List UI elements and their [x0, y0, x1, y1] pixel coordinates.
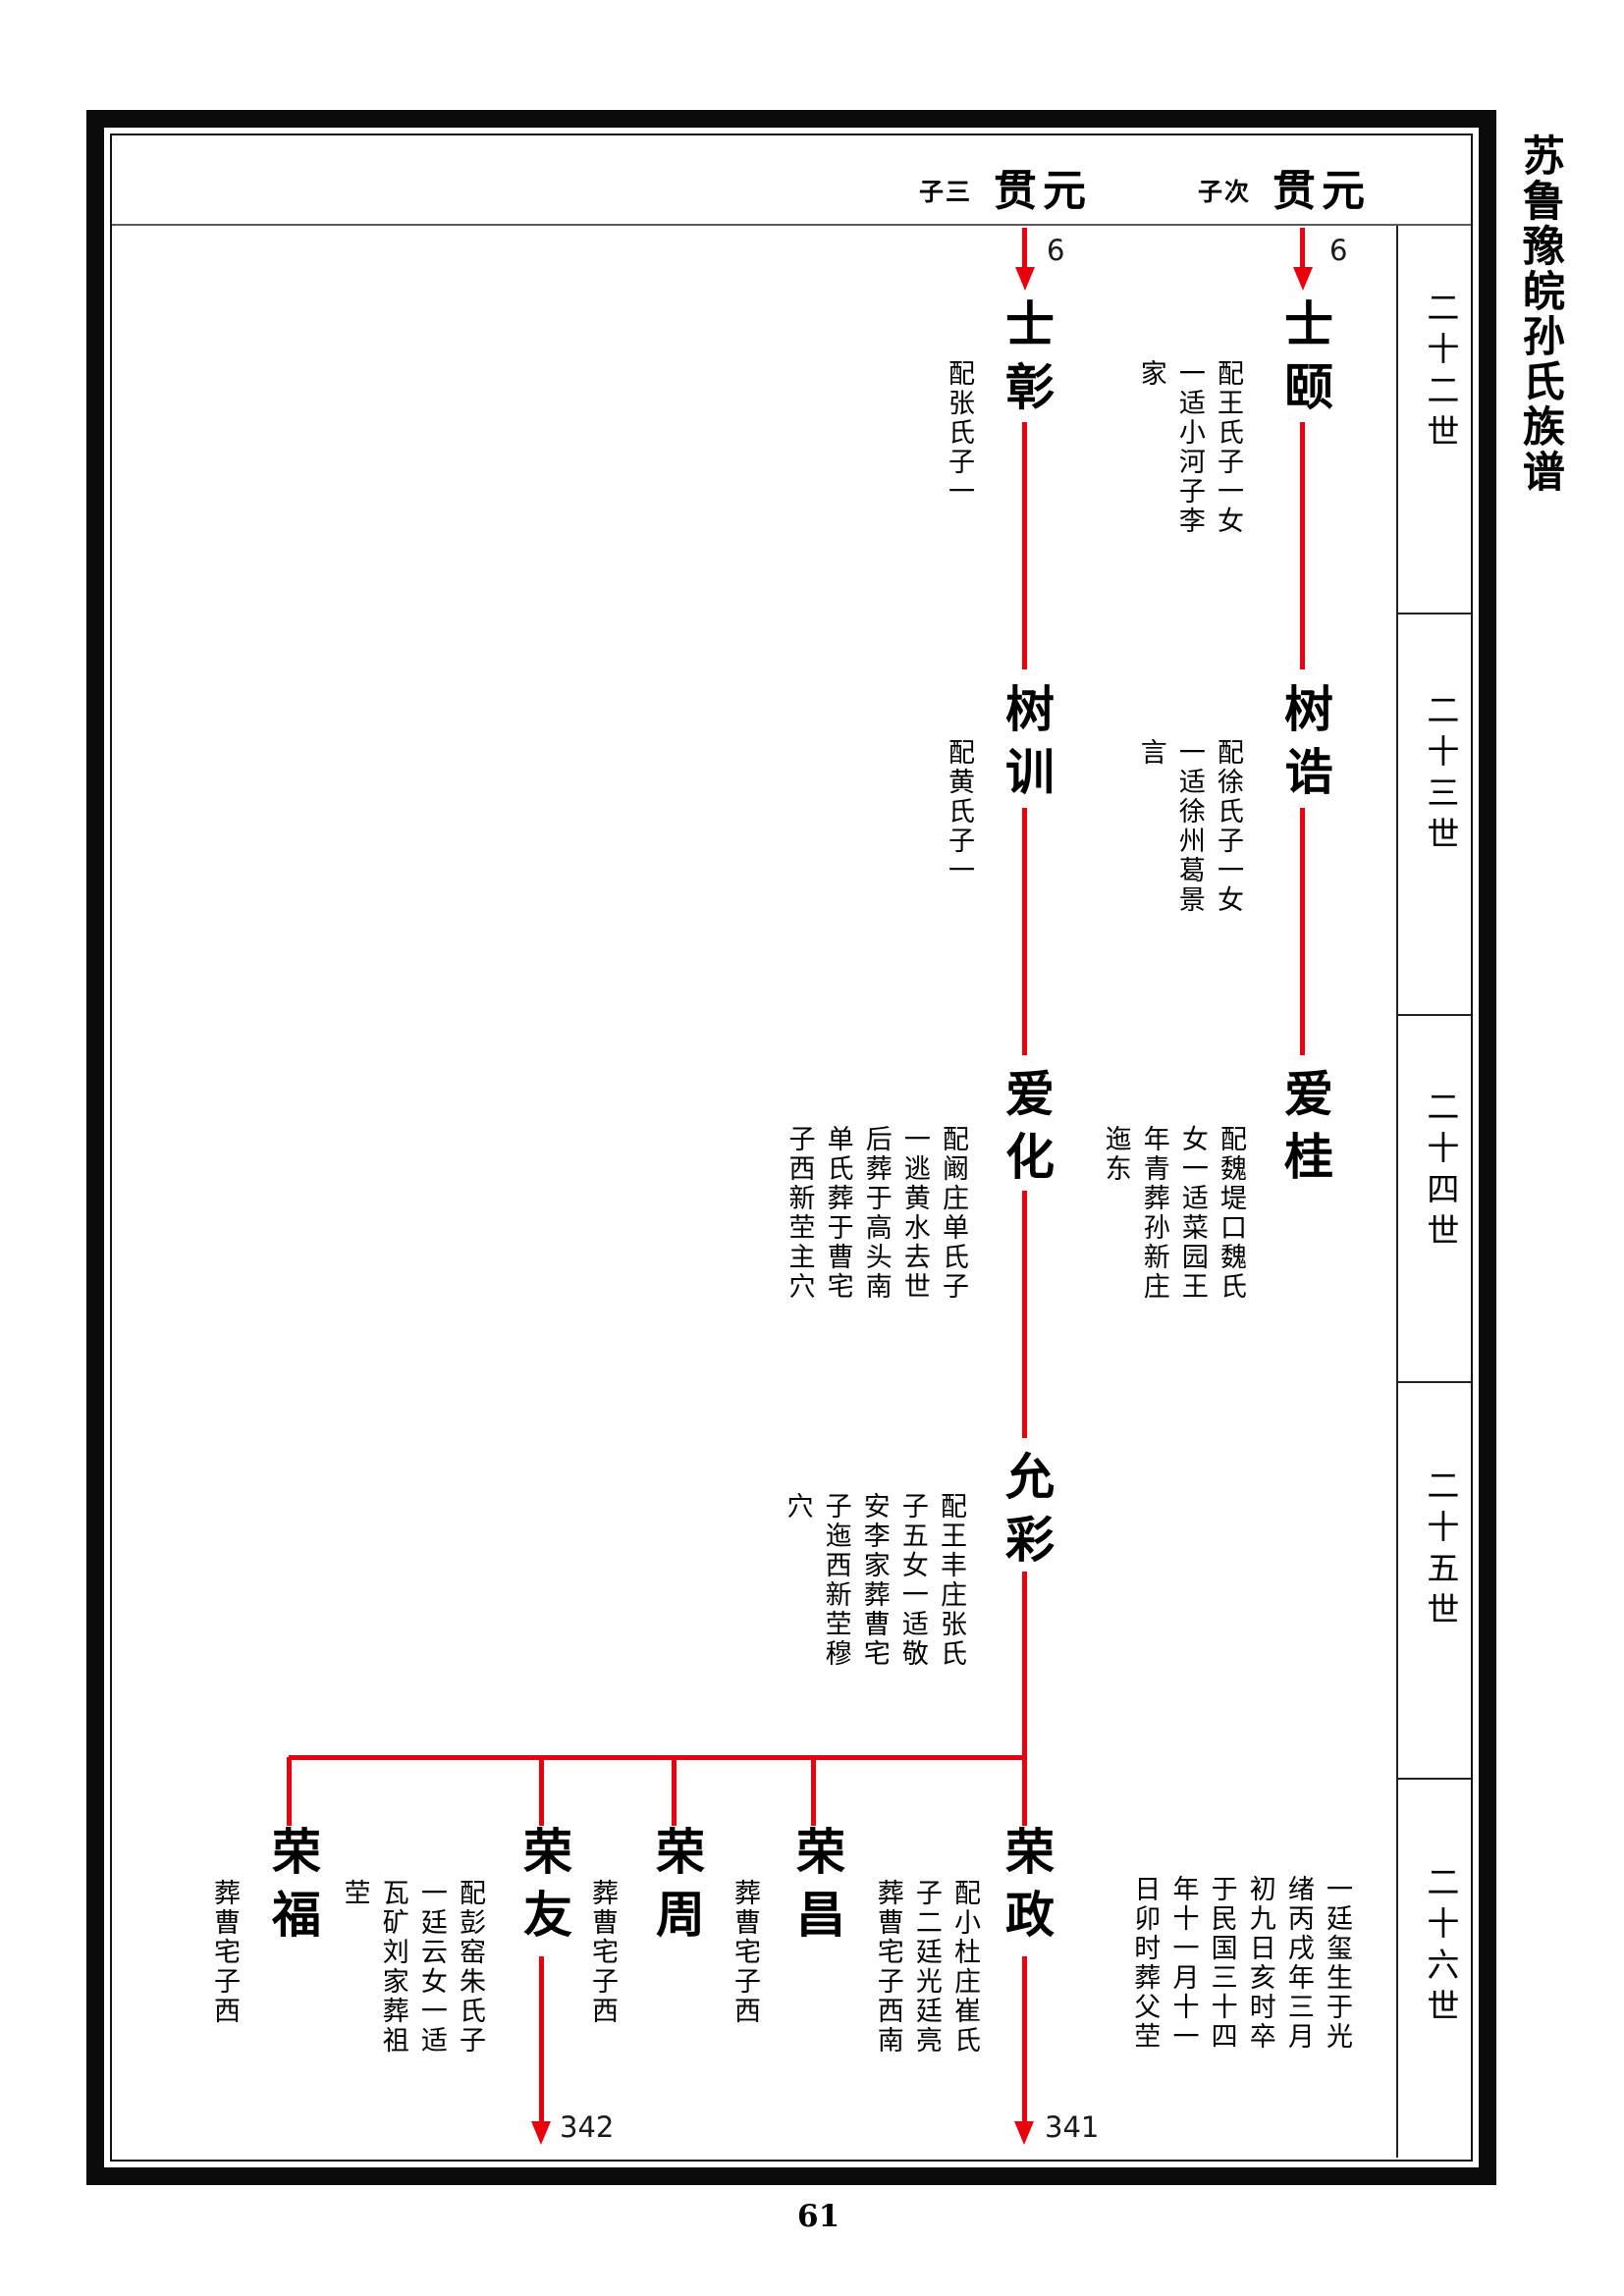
descendant-note: 一廷玺生于光绪丙戌年三月初九日亥时卒于民国三十四年十一月十一日卯时葬父茔 [1125, 1875, 1356, 2061]
person-name: 树诰 [1276, 683, 1329, 809]
book-title: 苏鲁豫皖孙氏族谱 [1508, 133, 1569, 526]
cross-ref-number: 342 [560, 2110, 614, 2144]
lineage-line [1022, 808, 1027, 1055]
generation-label-26: 二十六世 [1415, 1865, 1462, 2052]
birth-order-label: 子次 [1198, 173, 1251, 208]
generation-label-25: 二十五世 [1415, 1468, 1462, 1655]
person-name: 荣昌 [788, 1826, 841, 1951]
descent-arrow [1293, 267, 1313, 291]
branch-drop-line [811, 1757, 816, 1826]
descent-arrow [1014, 2121, 1034, 2145]
sibling-branch-bar [289, 1755, 1027, 1760]
person-name: 允彩 [998, 1451, 1051, 1576]
cross-ref-number: 6 [1329, 234, 1347, 267]
descent-arrow [531, 2121, 551, 2145]
generation-cell-line [1396, 613, 1471, 614]
descent-arrow [1015, 267, 1035, 291]
spouse-note: 配魏堤口魏氏女一适菜园王年青葬孙新庄迤东 [1096, 1125, 1250, 1311]
burial-note: 葬曹宅子西 [205, 1879, 244, 2065]
lineage-line [1022, 422, 1027, 669]
descent-line [1300, 228, 1305, 269]
spouse-note: 配王氏子一女一适小河子李家 [1132, 359, 1247, 546]
person-name: 爱桂 [1276, 1068, 1329, 1194]
header-separator-line [112, 224, 1471, 226]
birth-order-label: 子三 [919, 173, 972, 208]
generation-cell-line [1396, 1778, 1471, 1780]
page-number: 61 [797, 2199, 839, 2234]
spouse-note: 配彭窑朱氏子一廷云女一适瓦矿刘家葬祖茔 [335, 1879, 489, 2065]
lineage-line [1022, 1191, 1027, 1438]
person-name: 荣友 [515, 1826, 568, 1951]
burial-note: 葬曹宅子西 [583, 1879, 622, 2065]
spouse-note: 配王丰庄张氏子五女一适敬安李家葬曹宅子迤西新茔穆穴 [778, 1492, 970, 1679]
cross-ref-number: 341 [1045, 2110, 1099, 2144]
spouse-note: 配阚庄单氏子一逃黄水去世后葬于高头南单氏葬于曹宅子西新茔主穴 [780, 1125, 972, 1311]
generation-cell-line [1396, 1014, 1471, 1016]
generation-cell-line [1396, 1381, 1471, 1383]
person-name: 荣福 [264, 1826, 317, 1951]
lineage-line [1300, 422, 1305, 669]
person-name: 士颐 [1276, 298, 1329, 424]
branch-drop-line [287, 1757, 292, 1826]
person-name: 树训 [998, 683, 1051, 809]
descent-line [1022, 228, 1027, 269]
descent-line [539, 1956, 544, 2121]
lineage-line [1300, 808, 1305, 1055]
generation-label-22: 二十二世 [1415, 291, 1462, 477]
branch-drop-line [672, 1757, 677, 1826]
branch-drop-line [539, 1757, 544, 1826]
parent-name: 贯元 [994, 155, 1092, 218]
spouse-note: 配徐氏子一女一适徐州葛景言 [1132, 738, 1247, 925]
spouse-note: 配黄氏子一 [940, 738, 978, 925]
branch-drop-line [1022, 1757, 1027, 1826]
descent-line [1022, 1956, 1027, 2121]
spouse-note: 配小杜庄崔氏子二廷光廷亮葬曹宅子西南 [869, 1879, 984, 2065]
parent-name: 贯元 [1272, 155, 1371, 218]
person-name: 荣周 [648, 1826, 701, 1951]
burial-note: 葬曹宅子西 [726, 1879, 764, 2065]
person-name: 士彰 [998, 298, 1051, 424]
cross-ref-number: 6 [1047, 234, 1064, 267]
spouse-note: 配张氏子一 [940, 359, 978, 546]
generation-column-divider [1396, 226, 1398, 2158]
person-name: 荣政 [998, 1826, 1051, 1951]
lineage-line [1022, 1572, 1027, 1760]
person-name: 爱化 [998, 1068, 1051, 1194]
generation-label-24: 二十四世 [1415, 1090, 1462, 1276]
generation-label-23: 二十三世 [1415, 693, 1462, 880]
